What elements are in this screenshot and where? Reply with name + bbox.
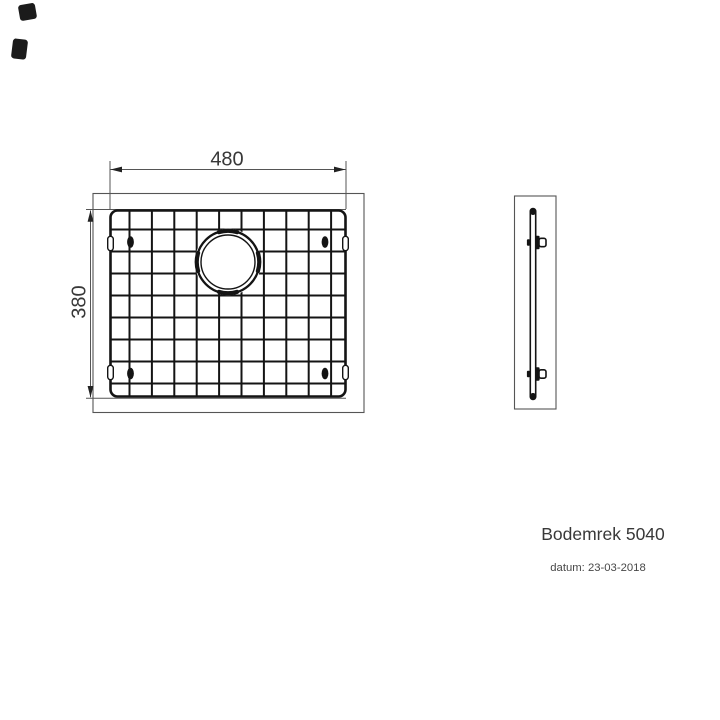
arrowhead-right	[334, 167, 346, 173]
side-grid-bar	[530, 209, 535, 400]
clip-left-bottom	[108, 365, 114, 379]
date-label: datum: 23-03-2018	[550, 562, 645, 574]
drain-hole	[195, 229, 261, 295]
drain-hole-clearing	[195, 229, 261, 295]
height-dim-label: 380	[69, 285, 91, 318]
front-view: 480 380	[69, 149, 365, 413]
side-bar-bottom-cap	[530, 393, 535, 400]
clip-left-top	[108, 236, 114, 250]
foot-top-right	[322, 236, 329, 248]
foot-bottom-left	[127, 368, 134, 380]
weld-arc-west	[197, 253, 198, 271]
artifact-marks	[11, 3, 37, 60]
hook-nub	[527, 239, 530, 245]
hook-loop	[539, 238, 546, 246]
title-block: Bodemrek 5040 datum: 23-03-2018	[541, 524, 665, 574]
foot-top-left	[127, 236, 134, 248]
width-dim-label: 480	[210, 149, 243, 171]
bottom-grid	[108, 211, 349, 397]
technical-drawing: 480 380	[0, 0, 720, 720]
weld-arc-south	[219, 292, 237, 293]
artifact-mark-2	[11, 38, 28, 60]
product-title: Bodemrek 5040	[541, 524, 665, 544]
weld-arc-north	[219, 231, 237, 232]
weld-arc-east	[258, 253, 259, 271]
artifact-mark-1	[18, 3, 38, 22]
hook-nub	[527, 371, 530, 377]
clip-right-top	[343, 236, 349, 250]
clip-right-bottom	[343, 365, 349, 379]
side-view	[515, 196, 557, 409]
arrowhead-left	[111, 167, 123, 173]
foot-bottom-right	[322, 368, 329, 380]
side-bar-top-cap	[530, 209, 535, 216]
hook-loop	[539, 370, 546, 378]
drawing-sheet: 480 380	[0, 0, 720, 720]
